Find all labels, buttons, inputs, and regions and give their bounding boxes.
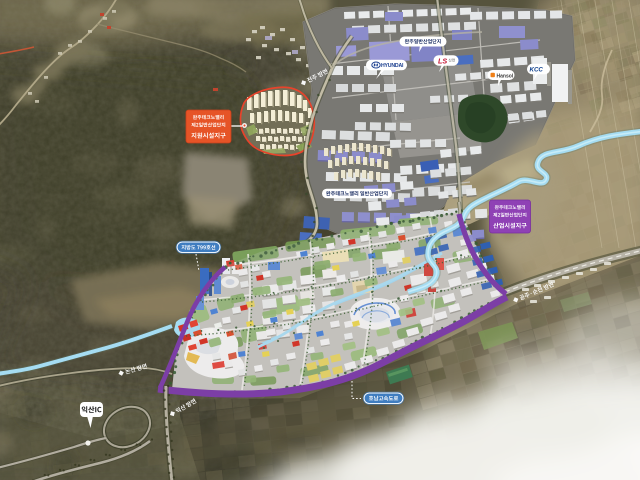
svg-text:HYUNDAI: HYUNDAI: [381, 63, 404, 69]
svg-text:KCC: KCC: [530, 67, 544, 74]
svg-text:Hansol: Hansol: [497, 73, 514, 79]
svg-text:LS: LS: [438, 56, 447, 65]
